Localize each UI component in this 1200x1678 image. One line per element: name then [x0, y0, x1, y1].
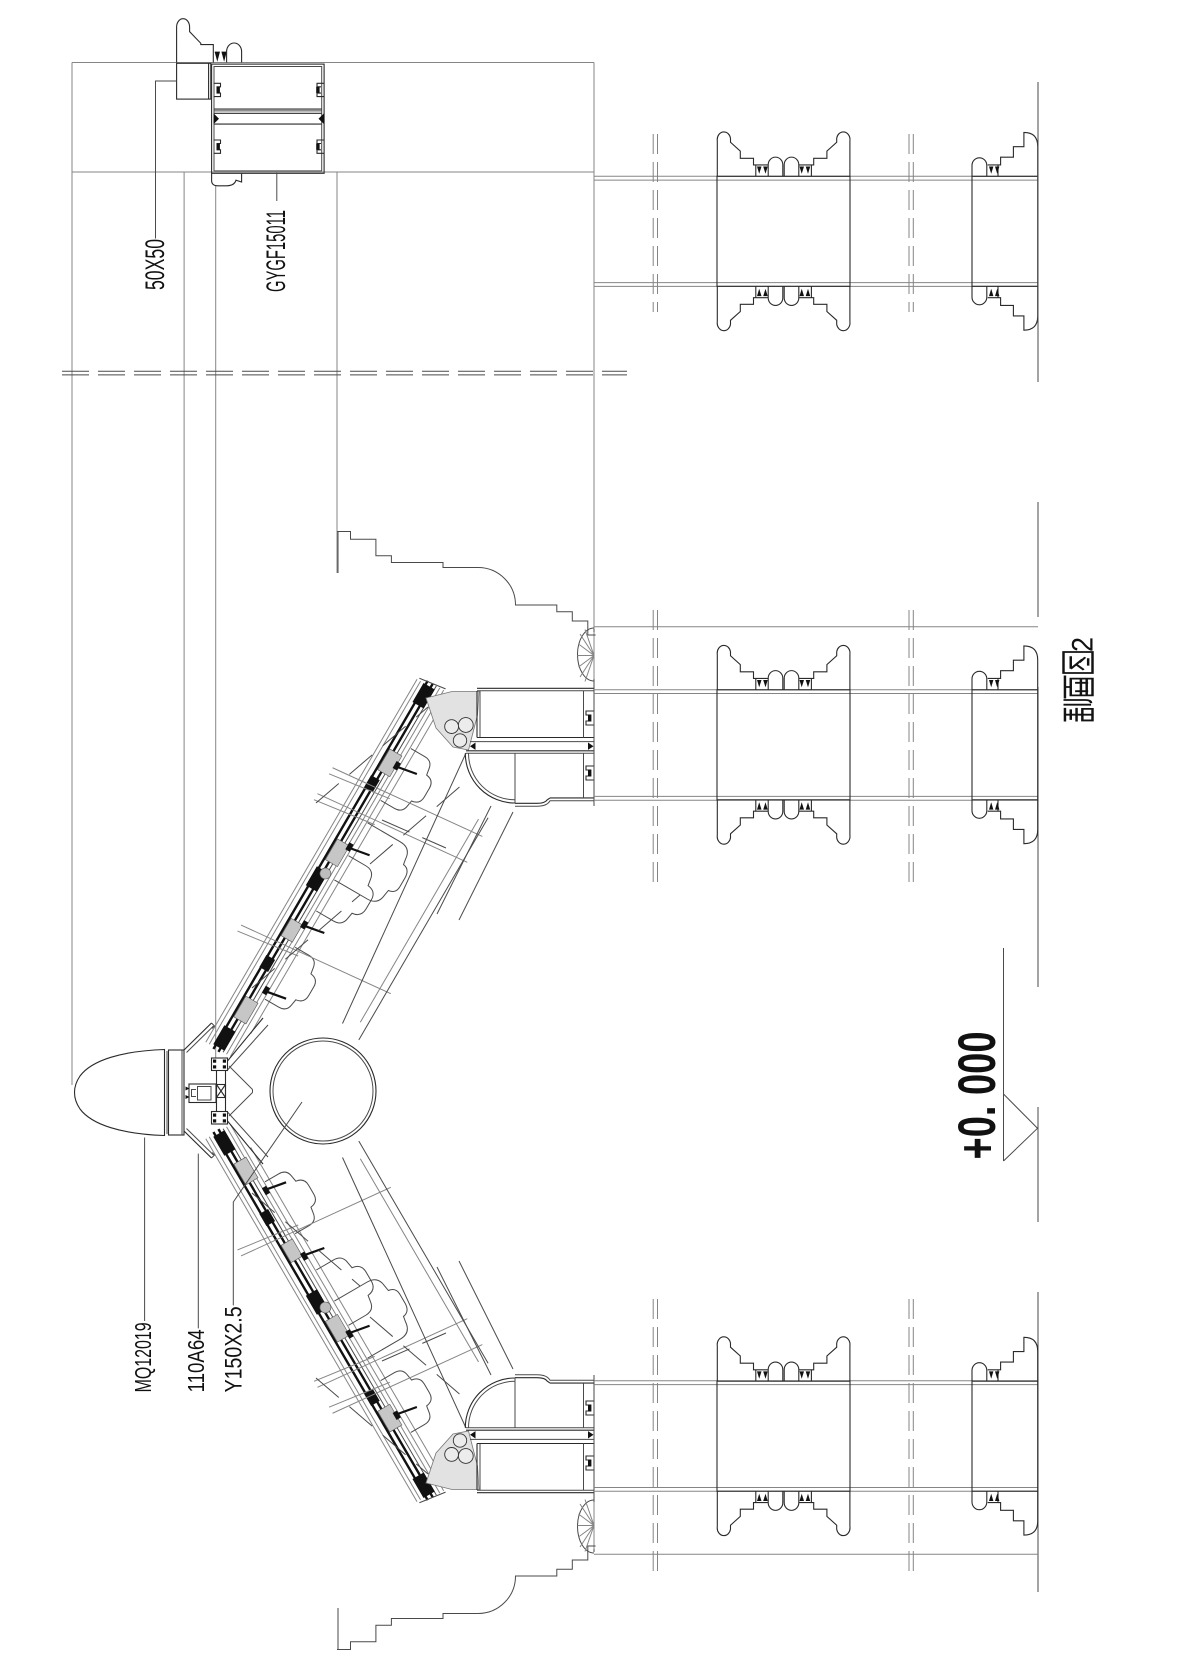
- svg-text:Y150X2.5: Y150X2.5: [221, 1306, 248, 1392]
- svg-text:MQ12019: MQ12019: [130, 1322, 156, 1392]
- svg-text:110A64: 110A64: [183, 1329, 209, 1392]
- svg-text:2: 2: [1067, 637, 1100, 652]
- svg-text:+0. 000: +0. 000: [948, 1032, 1007, 1160]
- svg-text:50X50: 50X50: [140, 239, 170, 290]
- svg-text:GYGF15011: GYGF15011: [261, 210, 291, 292]
